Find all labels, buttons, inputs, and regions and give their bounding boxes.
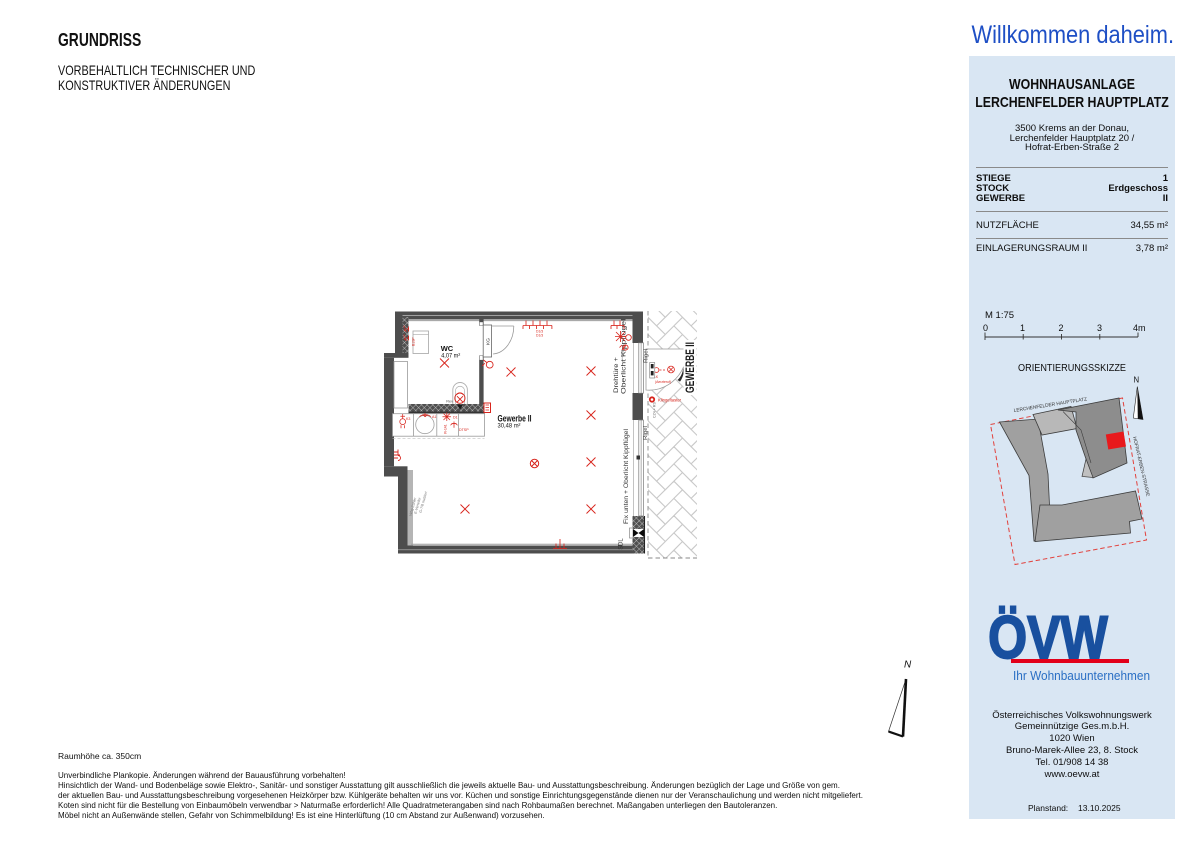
svg-text:Rigel: Rigel: [643, 426, 649, 440]
svg-text:Klingeltaster: Klingeltaster: [658, 398, 682, 403]
svg-text:DTSP: DTSP: [459, 428, 469, 432]
svg-text:K3: K3: [406, 417, 410, 421]
svg-text:Fix unten + Oberlicht Kippflüg: Fix unten + Oberlicht Kippflügel: [623, 429, 630, 524]
svg-text:N: N: [1134, 376, 1140, 385]
svg-text:D1/3: D1/3: [536, 333, 543, 337]
svg-text:WC: WC: [441, 344, 454, 353]
svg-text:4,07 m²: 4,07 m²: [441, 353, 460, 360]
svg-text:W-1A1: W-1A1: [444, 424, 448, 434]
svg-text:0: 0: [983, 323, 988, 333]
svg-text:GEWERBE II: GEWERBE II: [685, 342, 697, 393]
svg-text:1: 1: [1020, 323, 1025, 333]
svg-text:A1: A1: [432, 415, 436, 419]
svg-text:Rigel: Rigel: [643, 349, 649, 363]
svg-text:+4,08: +4,08: [621, 351, 625, 360]
svg-text:HOFRAT-ERBEN-STRASSE: HOFRAT-ERBEN-STRASSE: [1131, 436, 1151, 497]
svg-text:(Aerzteruf): (Aerzteruf): [655, 380, 671, 384]
svg-text:3: 3: [1097, 323, 1102, 333]
svg-text:4m: 4m: [1133, 323, 1146, 333]
svg-text:KG: KG: [486, 338, 492, 345]
svg-text:CZ4 + RS: CZ4 + RS: [653, 402, 657, 418]
svg-text:SDL: SDL: [619, 538, 625, 550]
svg-text:Rev: Rev: [446, 400, 453, 404]
svg-text:D1: D1: [453, 416, 458, 420]
svg-text:Drehtüre +: Drehtüre +: [613, 357, 620, 393]
svg-text:2: 2: [1059, 323, 1064, 333]
svg-text:N: N: [904, 660, 912, 671]
svg-text:30,48 m²: 30,48 m²: [498, 423, 522, 430]
svg-text:B1SP: B1SP: [412, 337, 416, 346]
